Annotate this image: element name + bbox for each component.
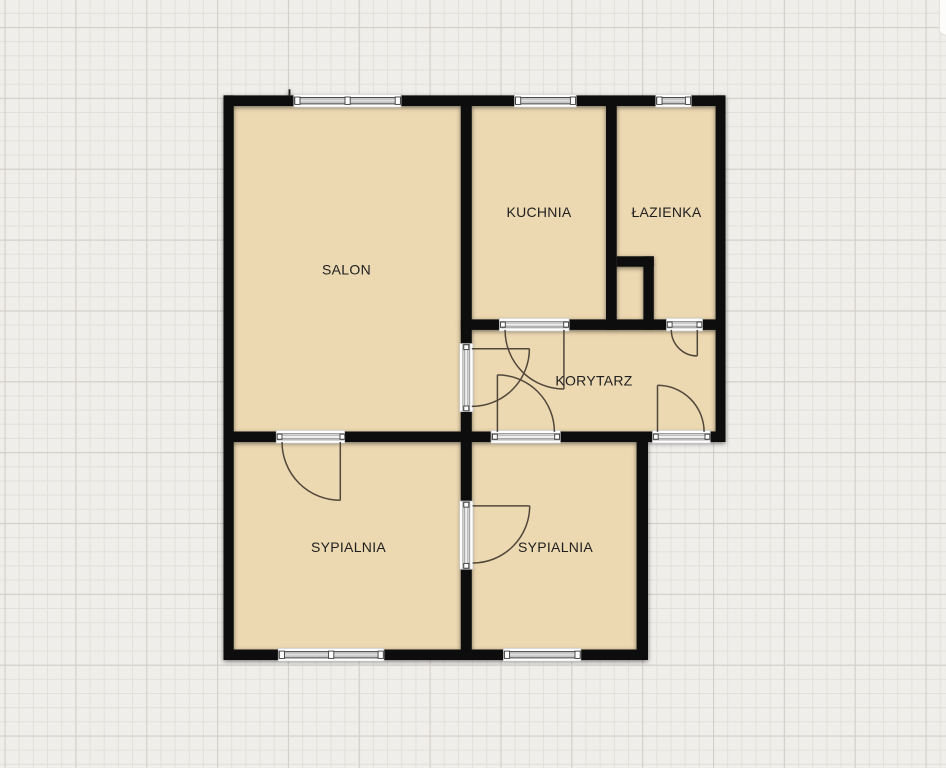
svg-text:SYPIALNIA: SYPIALNIA bbox=[311, 539, 386, 555]
svg-text:KUCHNIA: KUCHNIA bbox=[506, 204, 571, 220]
svg-text:ŁAZIENKA: ŁAZIENKA bbox=[631, 204, 701, 220]
svg-text:SALON: SALON bbox=[322, 262, 371, 278]
svg-text:KORYTARZ: KORYTARZ bbox=[555, 373, 632, 389]
svg-text:SYPIALNIA: SYPIALNIA bbox=[518, 539, 593, 555]
